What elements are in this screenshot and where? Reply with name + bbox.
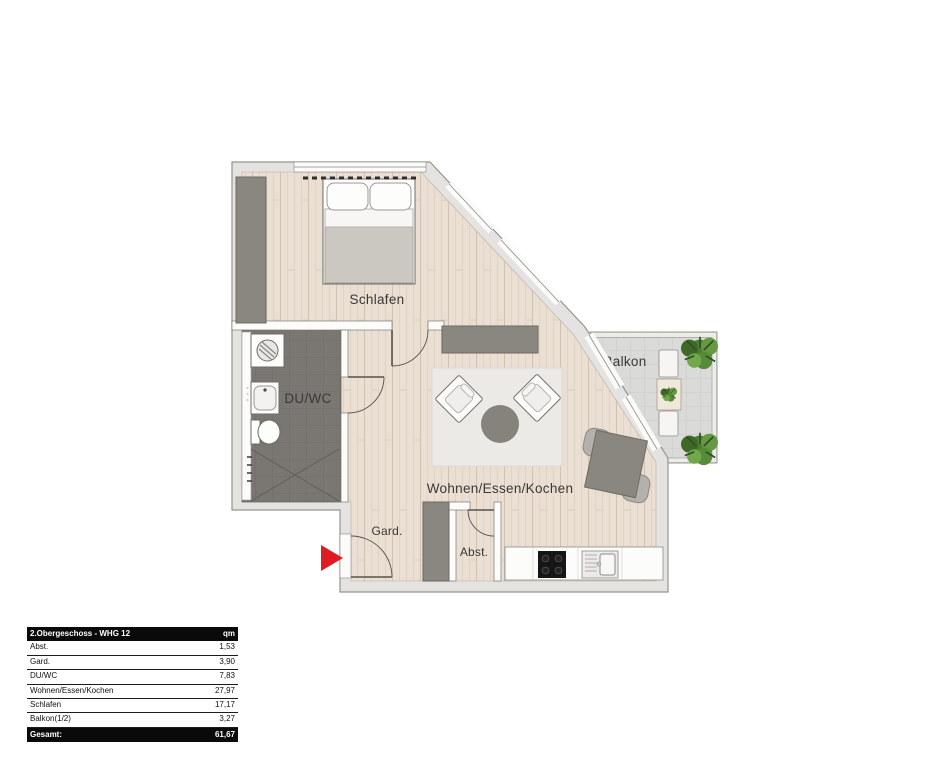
sideboard [442,326,538,353]
gard-wardrobe [423,502,449,581]
row-label: Wohnen/Essen/Kochen [30,686,113,696]
table-row: Schlafen 17,17 [27,699,238,713]
room-label-duwc: DU/WC [284,391,331,406]
room-label-gard: Gard. [371,524,402,538]
room-label-wohnen: Wohnen/Essen/Kochen [427,481,574,496]
washing-machine-icon [251,334,284,367]
pillow [327,183,368,210]
wall-bath-right-lower [341,413,348,502]
balcony-chair [659,350,678,377]
floor-plan-page: Balkon DU/WC [0,0,946,757]
row-label: Balkon(1/2) [30,714,71,724]
bathroom: DU/WC [242,330,341,502]
room-label-abst: Abst. [460,545,488,559]
wall-bath-right-upper [341,330,348,377]
footer-label: Gesamt: [30,730,62,740]
area-table-footer: Gesamt: 61,67 [27,728,238,742]
cooktop-icon [538,551,566,578]
row-value: 27,97 [215,686,235,696]
table-row: Gard. 3,90 [27,656,238,670]
table-title: 2.Obergeschoss - WHG 12 [30,629,130,639]
pillow [370,183,411,210]
kitchen [505,547,663,580]
window-top [294,162,426,172]
room-label-schlafen: Schlafen [350,292,405,307]
wall-abst-top [449,502,470,510]
table-row: Abst. 1,53 [27,641,238,655]
row-value: 7,83 [219,671,235,681]
table-row: Wohnen/Essen/Kochen 27,97 [27,685,238,699]
kitchen-sink-icon [582,551,618,578]
area-table: 2.Obergeschoss - WHG 12 qm Abst. 1,53 Ga… [27,627,238,742]
row-value: 1,53 [219,642,235,652]
balcony-chair [659,411,678,436]
row-value: 3,90 [219,657,235,667]
area-table-header: 2.Obergeschoss - WHG 12 qm [27,627,238,641]
living-area [432,368,562,466]
row-value: 3,27 [219,714,235,724]
wardrobe [236,177,266,323]
dining-table [585,430,648,498]
row-label: Schlafen [30,700,61,710]
coffee-table [481,405,519,443]
table-unit: qm [223,629,235,639]
table-row: DU/WC 7,83 [27,670,238,684]
footer-value: 61,67 [215,730,235,740]
installation-wall [242,332,251,500]
row-label: Gard. [30,657,50,667]
row-value: 17,17 [215,700,235,710]
table-row: Balkon(1/2) 3,27 [27,713,238,727]
toilet-icon [251,420,280,444]
sink-icon [246,382,279,414]
wall-abst-left [449,502,456,581]
row-label: DU/WC [30,671,57,681]
row-label: Abst. [30,642,48,652]
wall-abst-right [494,502,501,581]
